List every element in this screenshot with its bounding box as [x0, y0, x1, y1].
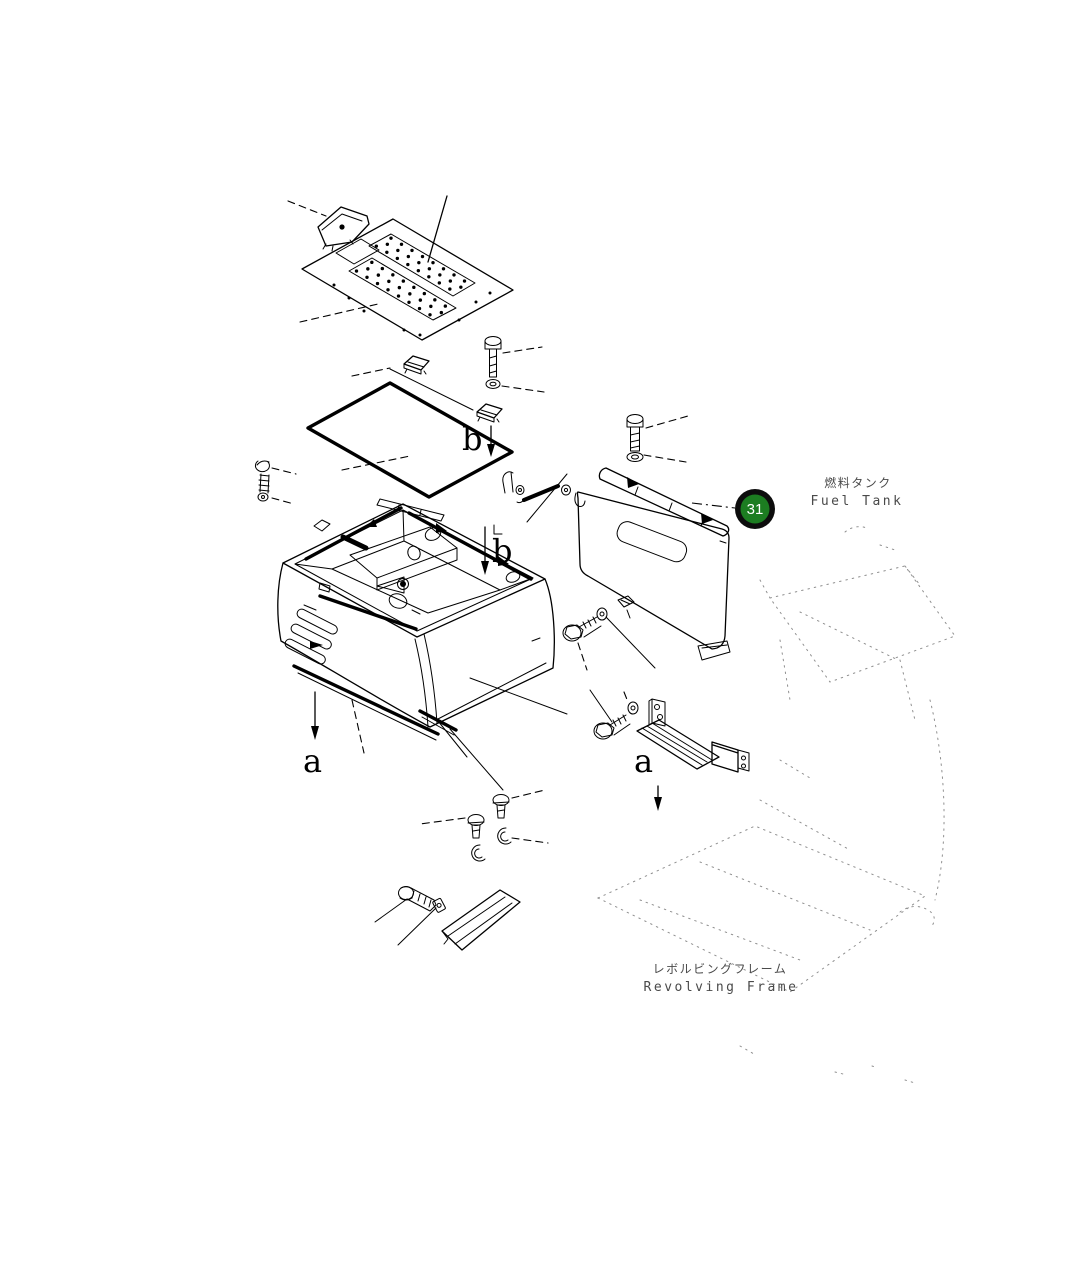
arrow-down-icon [481, 561, 489, 575]
plugs-and-clips [420, 790, 548, 861]
perforated-cover-plate [300, 196, 513, 340]
snap-clip [575, 493, 585, 506]
arrow-down-icon [311, 726, 319, 740]
bolt-left [255, 461, 296, 504]
washer [627, 453, 643, 462]
edge-dots [333, 284, 492, 337]
fuel-tank-label: 燃料タンク Fuel Tank [811, 475, 904, 509]
arrow-down-icon [487, 444, 495, 457]
view-label-b: b [492, 532, 512, 570]
arrow-right-icon [310, 641, 323, 649]
view-label-b: b [462, 420, 482, 458]
mounting-bracket [637, 699, 749, 772]
hinge-clips [352, 356, 502, 422]
revolving-frame-label-jp: レボルビングフレーム [653, 962, 788, 976]
exploded-parts-diagram: b [0, 0, 1092, 1268]
fuel-tank-label-jp: 燃料タンク [824, 475, 892, 490]
bottom-left-bolt-and-plate [375, 887, 520, 951]
callout-a-right: a [634, 742, 662, 811]
badge-number: 31 [747, 501, 764, 518]
hinge-clip [404, 356, 429, 374]
parts-diagram-page: b [0, 0, 1092, 1268]
washer [628, 702, 638, 714]
small-clip [314, 520, 330, 531]
revolving-frame-label-en: Revolving Frame [644, 980, 799, 995]
rim-seal-left [306, 508, 401, 559]
latch-pin [339, 224, 344, 229]
phantom-revolving-frame [598, 527, 955, 1083]
rim-seal-right [409, 513, 531, 579]
plug [493, 795, 509, 819]
plug [468, 815, 484, 839]
panel-edge-clip [618, 596, 634, 618]
washer [597, 608, 607, 620]
bolt-panel-lower-left [563, 608, 655, 670]
box-floor [332, 541, 500, 613]
bolt-top-center [485, 337, 544, 393]
latch-part [288, 201, 369, 251]
louver-vents [284, 605, 339, 666]
revolving-frame-label: レボルビングフレーム Revolving Frame [644, 962, 799, 995]
bolt-bracket [590, 690, 638, 739]
rod-pin-assembly [494, 472, 585, 534]
rod [524, 486, 558, 500]
washer [486, 380, 500, 389]
handle-slot [614, 519, 689, 564]
callout-b-inner: b [481, 527, 512, 575]
bent-plate [442, 890, 520, 950]
arrow-down-icon [654, 797, 662, 811]
clip [498, 828, 511, 844]
bolt-above-panel [627, 415, 688, 463]
handle-recess [336, 239, 379, 264]
fuel-tank-label-en: Fuel Tank [811, 494, 904, 509]
fuel-tank-cover-panel [578, 468, 731, 660]
callout-a-left: a [303, 692, 322, 780]
perforated-panel-upper [369, 234, 475, 296]
main-box [278, 499, 567, 727]
clip [472, 845, 485, 861]
under-box-seal-strips [294, 666, 503, 790]
view-label-a: a [303, 742, 322, 780]
view-label-a: a [634, 742, 653, 780]
